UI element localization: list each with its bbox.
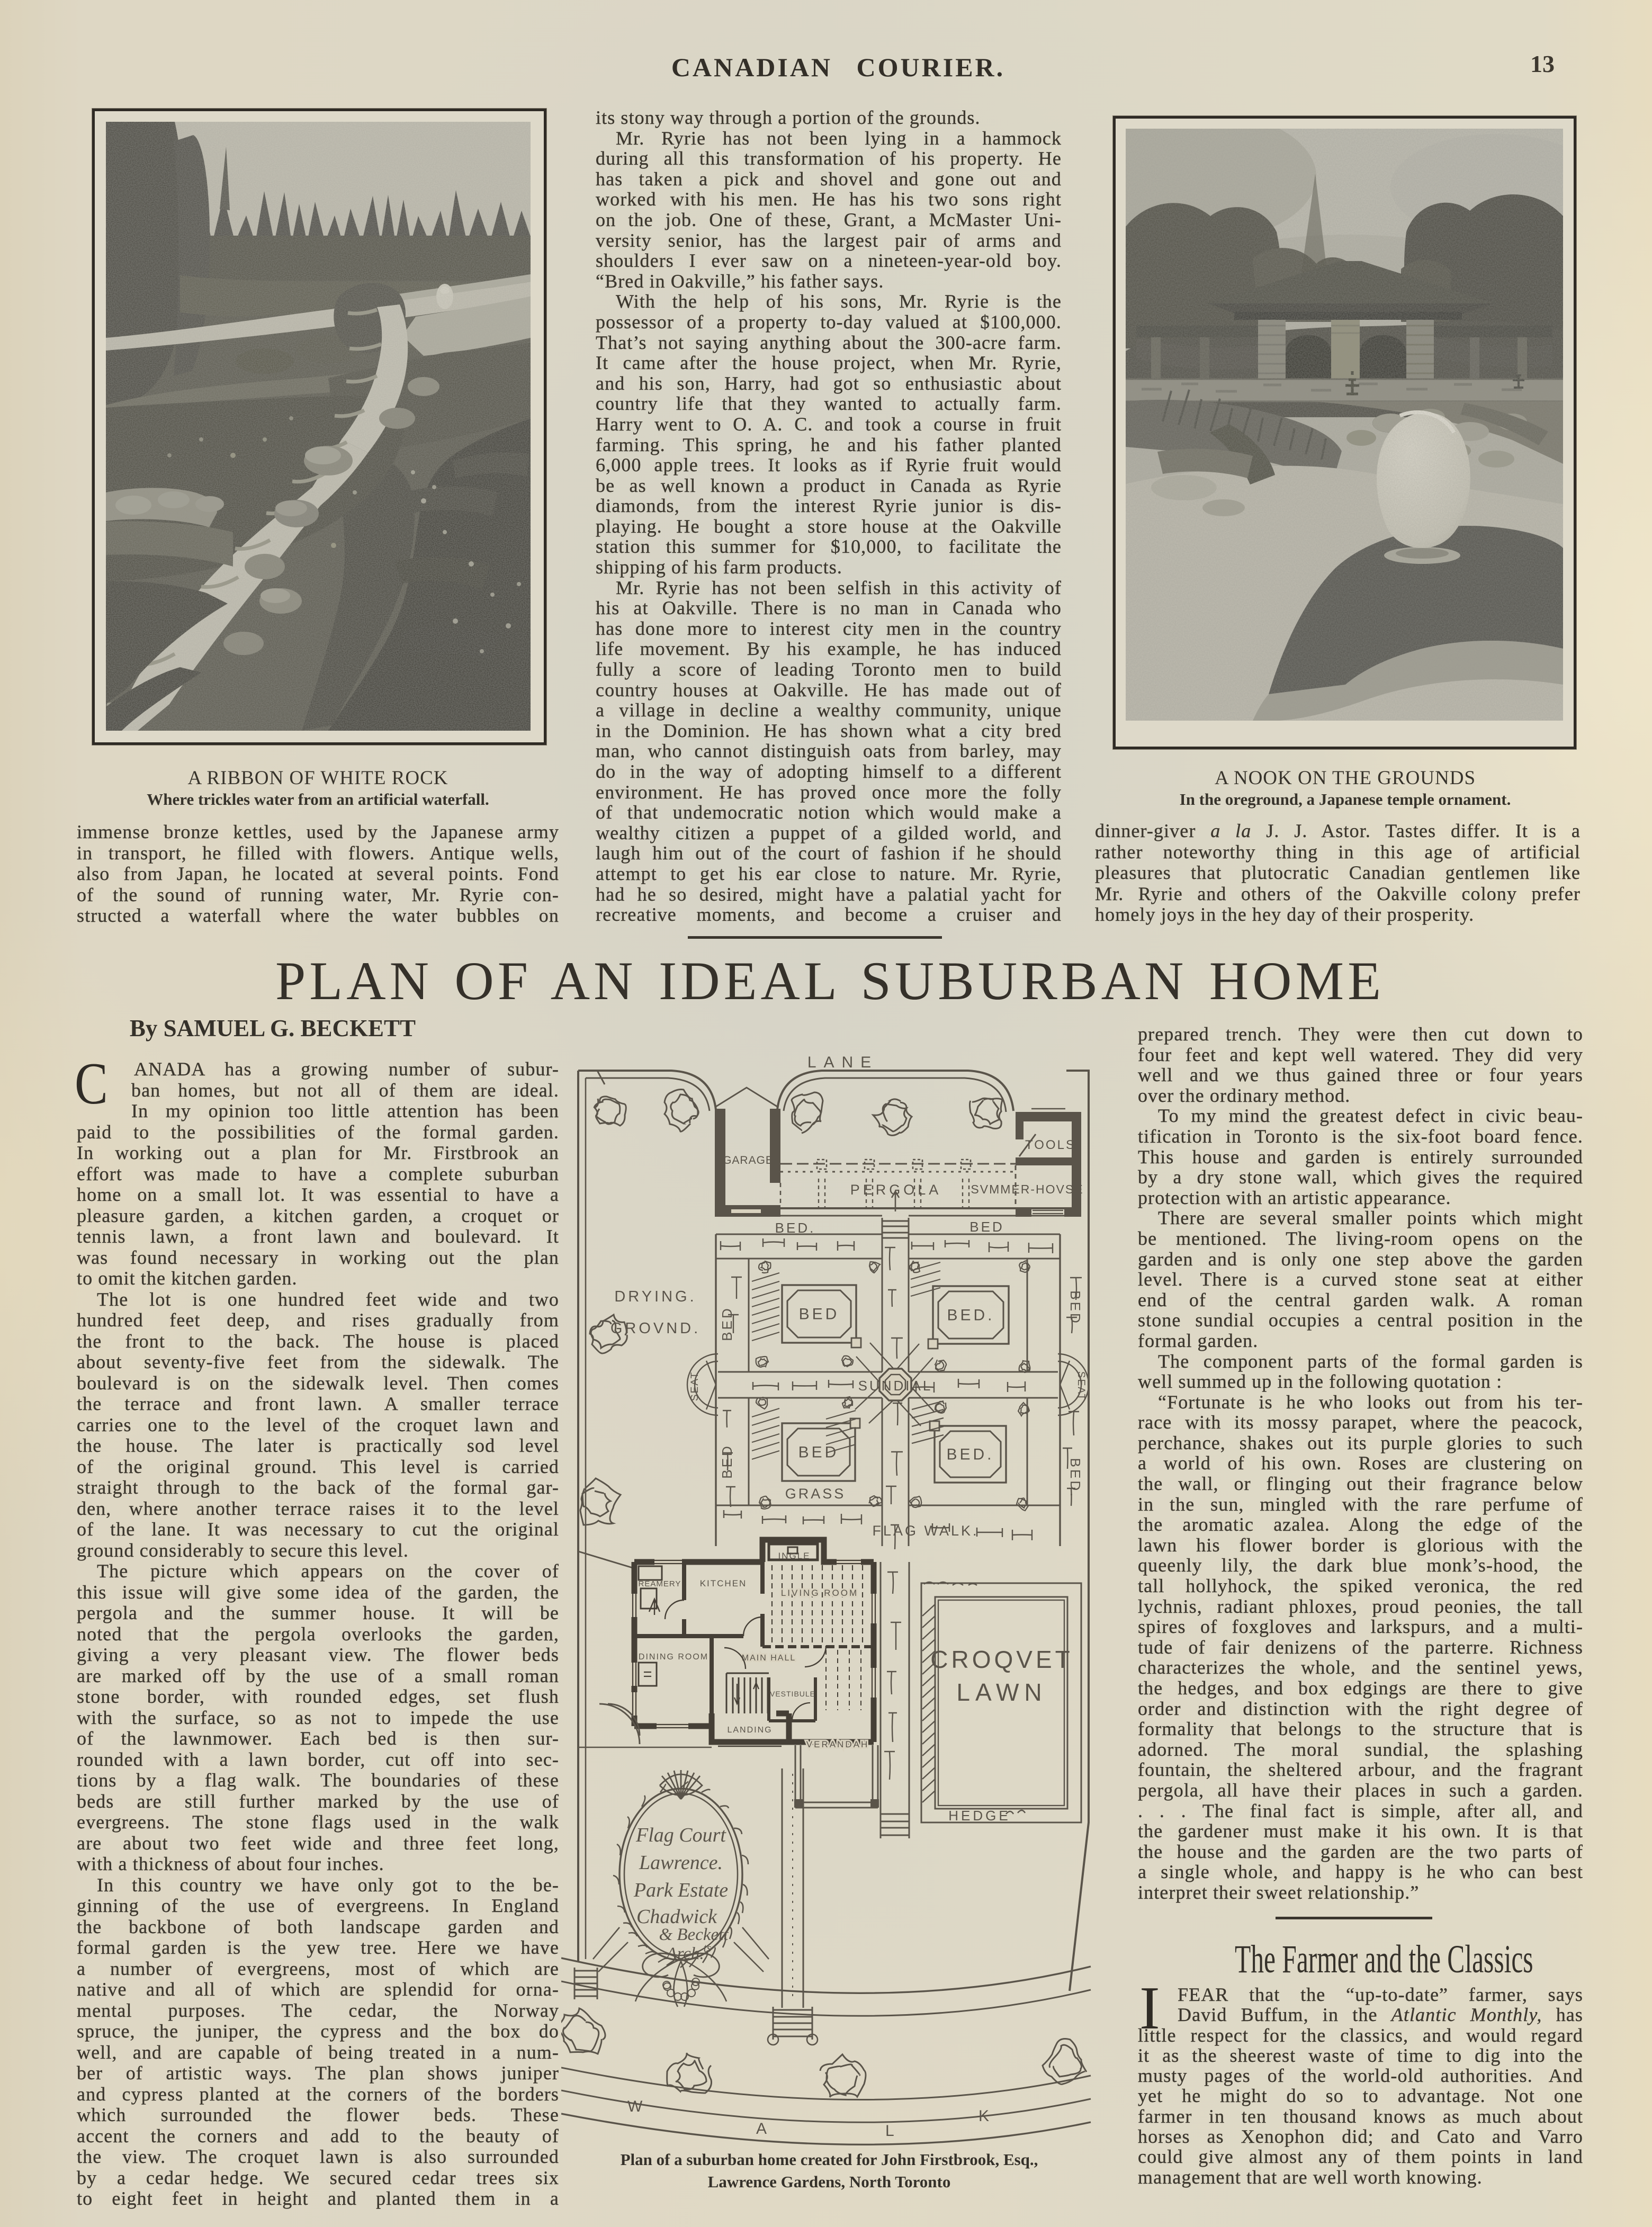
svg-text:ts: ts	[704, 1941, 712, 1954]
svg-text:KITCHEN: KITCHEN	[700, 1578, 747, 1588]
svg-text:BED: BED	[719, 1306, 735, 1341]
svg-text:LIVING ROOM: LIVING ROOM	[781, 1588, 858, 1598]
svg-text:W: W	[627, 2098, 643, 2115]
svg-text:& Beckett: & Beckett	[659, 1925, 729, 1944]
svg-text:FLAG WALK.: FLAG WALK.	[872, 1523, 978, 1539]
svg-text:A: A	[756, 2120, 767, 2138]
svg-text:BED: BED	[799, 1306, 840, 1323]
svg-text:LAWN: LAWN	[956, 1678, 1047, 1706]
svg-text:CROQVET: CROQVET	[930, 1646, 1073, 1673]
svg-text:MAIN HALL: MAIN HALL	[742, 1654, 796, 1663]
svg-text:SEAT: SEAT	[689, 1371, 701, 1401]
svg-text:GRASS: GRASS	[785, 1486, 846, 1502]
svg-text:GROVND.: GROVND.	[610, 1320, 701, 1337]
svg-text:LANE: LANE	[807, 1054, 878, 1071]
svg-text:BED: BED	[969, 1219, 1004, 1235]
svg-text:Chadwick: Chadwick	[636, 1906, 717, 1928]
svg-text:Lawrence.: Lawrence.	[639, 1852, 723, 1874]
svg-text:VERANDAH: VERANDAH	[806, 1739, 869, 1749]
svg-text:VESTIBULE: VESTIBULE	[770, 1690, 815, 1698]
svg-text:K: K	[978, 2107, 989, 2125]
svg-text:BED.: BED.	[946, 1446, 994, 1463]
svg-text:SUNDIAL: SUNDIAL	[858, 1378, 933, 1394]
svg-text:BED.: BED.	[1067, 1458, 1083, 1499]
svg-text:REAMERY: REAMERY	[639, 1579, 681, 1588]
svg-text:L: L	[885, 2122, 894, 2140]
svg-text:SVMMER-HOVSE: SVMMER-HOVSE	[971, 1182, 1083, 1196]
svg-text:DRYING.: DRYING.	[614, 1288, 696, 1305]
svg-text:INGLE: INGLE	[778, 1551, 810, 1561]
svg-text:BED: BED	[719, 1444, 735, 1478]
svg-text:BED.: BED.	[947, 1307, 994, 1324]
svg-text:Park Estate: Park Estate	[633, 1879, 728, 1901]
svg-text:HEDGE: HEDGE	[948, 1808, 1010, 1824]
svg-text:SEAT: SEAT	[1075, 1371, 1087, 1401]
svg-text:GARAGE: GARAGE	[723, 1154, 774, 1166]
svg-text:LANDING: LANDING	[727, 1726, 772, 1735]
svg-text:BED: BED	[798, 1444, 839, 1461]
svg-text:DINING ROOM: DINING ROOM	[639, 1653, 708, 1662]
svg-text:TOOLS: TOOLS	[1025, 1138, 1076, 1152]
svg-text:Arch.: Arch.	[665, 1944, 704, 1963]
svg-text:BED: BED	[1067, 1290, 1083, 1325]
svg-text:Flag Court: Flag Court	[635, 1824, 726, 1846]
